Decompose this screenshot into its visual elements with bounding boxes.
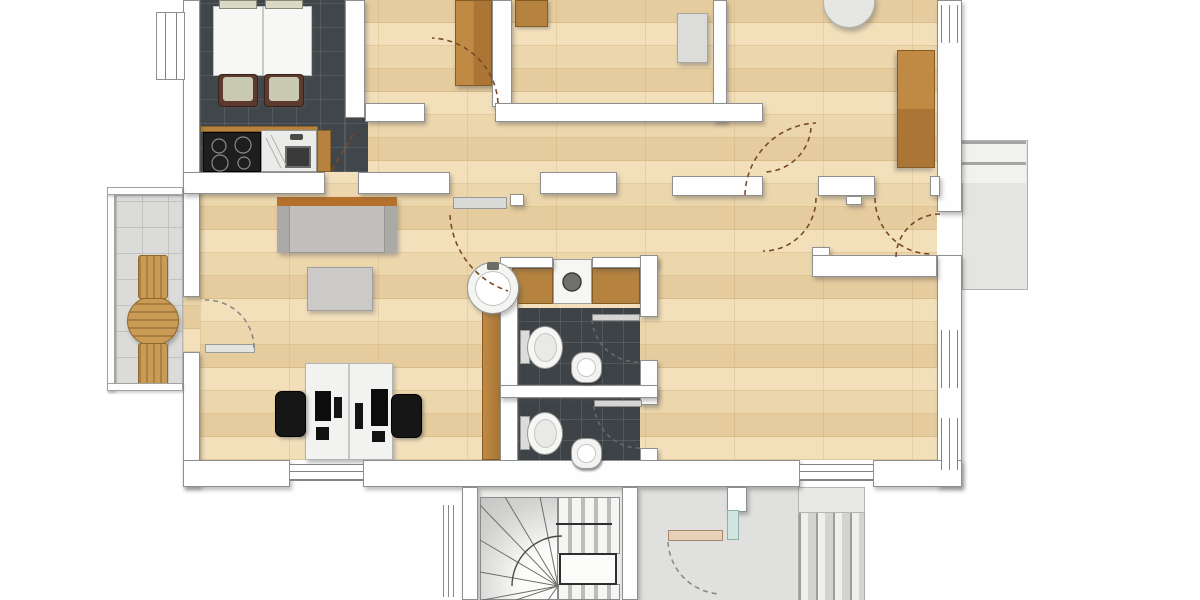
kitchen-sink-faucet [290, 134, 303, 140]
bigroom-north-wall-east [930, 176, 940, 196]
entry-door-stub-wall [727, 487, 747, 512]
sofa-arm-left [277, 206, 290, 253]
bath-counter-east [592, 268, 640, 304]
bath-east-wall-mid [640, 360, 658, 405]
stairwell-east-wall [622, 487, 638, 600]
wc2-door-leaf [594, 400, 642, 407]
monitor-left [315, 391, 331, 421]
monitor-right [371, 389, 388, 426]
kitchen-floor-extension [345, 118, 368, 172]
roomB-dresser [677, 13, 708, 63]
south-wall-west [183, 460, 290, 487]
porch-landing-strip [798, 487, 865, 513]
hallway-wardrobe [455, 0, 492, 86]
stair-flight-north [558, 497, 620, 554]
hall-door-jamb [510, 194, 524, 206]
roomB-south-wall [495, 103, 763, 122]
balcony-table [127, 296, 179, 346]
balcony-door-leaf [205, 344, 255, 353]
floor-plan-canvas [0, 0, 1200, 600]
balcony-rail-south [107, 383, 183, 391]
sofa-arm-right [384, 206, 397, 253]
bigroom-door-jamb [846, 196, 862, 205]
entry-hall-floor [638, 487, 798, 600]
nook-wall [812, 255, 937, 277]
coffee-table [307, 267, 373, 311]
window-stairhall-west [443, 505, 454, 597]
hall-north-wall [540, 172, 617, 194]
dining-chair-north-left [219, 0, 257, 9]
bath-west-wall [500, 288, 518, 475]
kitchen-south-wall-west [183, 172, 325, 194]
bigroom-north-wall-west [672, 176, 763, 196]
kitchen-east-wall [345, 0, 365, 118]
wood-threshold-balcony-door [183, 297, 200, 352]
bath-east-wall-north [640, 255, 658, 317]
keyboard-right [355, 403, 363, 429]
hall-basin-faucet [487, 262, 499, 270]
desk-item-right [372, 431, 385, 442]
roomC-wardrobe [897, 50, 935, 168]
wc2-toilet-seat [534, 419, 557, 448]
roomA-east-wall [492, 0, 512, 107]
west-wall-north [183, 0, 200, 297]
window-bigroom-south [800, 464, 873, 481]
window-east-low [941, 418, 958, 470]
bigroom-north-wall-mid [818, 176, 875, 196]
exterior-landing-steps [962, 141, 1026, 183]
office-chair-right [391, 394, 422, 438]
roomB-sideboard [515, 0, 548, 27]
stair-winder-fan [480, 497, 558, 600]
office-chair-left [275, 391, 306, 437]
balcony-chair-north [138, 255, 168, 299]
stair-flight-south [558, 584, 620, 600]
exterior-steps-south [798, 513, 865, 600]
kitchen-south-wall-east [358, 172, 450, 194]
wc1-sink-inner [577, 358, 596, 377]
kitchen-counter-end [317, 130, 331, 172]
dining-chair-north-right [265, 0, 303, 9]
roomA-south-wall [365, 103, 425, 122]
stairwell-west-wall [462, 487, 478, 600]
dining-chair-south-left-cushion [223, 77, 253, 101]
dining-chair-south-right-cushion [269, 77, 299, 101]
window-west [156, 12, 185, 80]
wc1-toilet-seat [534, 333, 557, 362]
sofa-back-edge [277, 197, 397, 206]
kitchen-sink-basin [285, 146, 311, 168]
washing-machine [553, 259, 592, 304]
stove-cooktop [203, 132, 261, 172]
wc1-door-leaf [592, 314, 640, 321]
entry-glass-sidelight [727, 510, 739, 540]
balcony-rail-north [107, 187, 183, 195]
entry-door-leaf [668, 530, 723, 541]
window-living-south [290, 464, 363, 481]
keyboard-left [334, 397, 342, 418]
bath-divider-wall [500, 385, 658, 398]
hall-basin-inner [475, 271, 511, 306]
window-east-top [941, 5, 958, 43]
desk-item-left [316, 427, 329, 440]
dining-table [213, 6, 312, 76]
window-east-mid [941, 330, 958, 388]
wc2-sink-inner [577, 444, 596, 463]
hall-door-leaf [453, 197, 507, 209]
bath-side-panel [482, 310, 502, 460]
balcony-rail-west [107, 187, 115, 391]
